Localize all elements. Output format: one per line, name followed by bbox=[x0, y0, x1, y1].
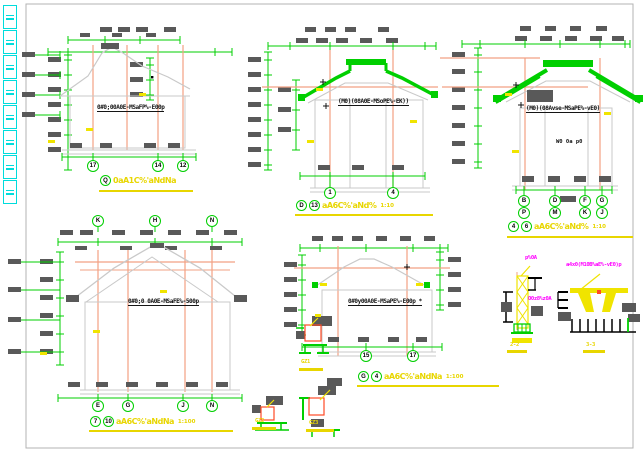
grid-bubble: G bbox=[596, 195, 608, 207]
drawing-title-text: aA6C%'aNdNa bbox=[384, 372, 442, 381]
grid-bubble: 14 bbox=[152, 160, 164, 172]
drawing-title: Q 0aA1C%'aNdNa bbox=[100, 175, 176, 186]
detail-label: GZ3 bbox=[309, 420, 318, 426]
grid-bubble: G bbox=[122, 400, 134, 412]
elevation-annotation: (M0)(08A0E-MSoPE%-EK)) bbox=[338, 98, 409, 106]
grid-bubble: 17 bbox=[87, 160, 99, 172]
elevation-annotation: 0#0;0 0A0E-MSaFE%-500p bbox=[128, 298, 199, 306]
detail-label-underline bbox=[583, 350, 605, 353]
detail-label: 2-2 bbox=[510, 342, 519, 348]
title-bubble: 4 bbox=[371, 371, 382, 382]
elevation-annotation: 0#0;00A0E-MSaFP%-E00p bbox=[97, 104, 164, 112]
grid-bubble: H bbox=[149, 215, 161, 227]
detail-label-underline bbox=[306, 429, 334, 432]
drawing-title-text: aA6C%'aNd% bbox=[534, 222, 588, 231]
drawing-title-text: aA6C%'aNd% bbox=[322, 201, 376, 210]
grid-bubble: 4 bbox=[387, 187, 399, 199]
grid-bubble: N bbox=[206, 400, 218, 412]
drawing-scale: 1:10 bbox=[592, 224, 606, 230]
callout-text: a4x0(M10B%aE%-vE0)p bbox=[566, 262, 621, 268]
title-bubble: 7 bbox=[90, 416, 101, 427]
grid-bubble: N bbox=[206, 215, 218, 227]
title-underline bbox=[507, 236, 633, 238]
grid-bubble: M bbox=[549, 207, 561, 219]
title-underline bbox=[99, 190, 193, 192]
title-bubble: 13 bbox=[309, 200, 320, 211]
drawing-title: D 13 aA6C%'aNd% 1:10 bbox=[296, 200, 394, 211]
title-underline bbox=[357, 385, 499, 387]
title-underline bbox=[295, 214, 433, 216]
title-bubble: 6 bbox=[521, 221, 532, 232]
detail-label-underline bbox=[507, 350, 527, 353]
drawing-scale: 1:100 bbox=[446, 374, 464, 380]
grid-bubble: J bbox=[177, 400, 189, 412]
drawing-title-text: aA6C%'aNdNa bbox=[116, 417, 174, 426]
drawing-title: 4 6 aA6C%'aNd% 1:10 bbox=[508, 221, 606, 232]
detail-label: GZ2 bbox=[255, 418, 264, 424]
drawing-scale: 1:10 bbox=[380, 203, 394, 209]
elevation-annotation: (M0)(08Avse-MSaPE%-vE0) bbox=[526, 105, 600, 113]
grid-bubble: B bbox=[518, 195, 530, 207]
drawing-scale: 1:100 bbox=[178, 419, 196, 425]
callout-text: p%0A bbox=[525, 255, 537, 261]
grid-bubble: J bbox=[596, 207, 608, 219]
elevation-annotation: 0#0y00A0E-MSaPE%-E00p * bbox=[348, 298, 422, 306]
grid-bubble: 12 bbox=[177, 160, 189, 172]
title-bubble: 4 bbox=[508, 221, 519, 232]
title-bubble: D bbox=[296, 200, 307, 211]
title-bubble: G bbox=[358, 371, 369, 382]
elevation-note: W0 0a p0 bbox=[556, 139, 583, 145]
detail-label: GZ1 bbox=[301, 359, 310, 365]
grid-bubble: P bbox=[518, 207, 530, 219]
cad-viewer-window: 0#0;00A0E-MSaFP%-E00p (M0)(08A0E-MSoPE%-… bbox=[0, 0, 643, 453]
detail-label-underline bbox=[299, 368, 323, 371]
title-bubble: 10 bbox=[103, 416, 114, 427]
grid-bubble: F bbox=[579, 195, 591, 207]
detail-label-underline bbox=[252, 427, 276, 430]
grid-bubble: 15 bbox=[360, 350, 372, 362]
grid-bubble: D bbox=[549, 195, 561, 207]
drawing-title-text: 0aA1C%'aNdNa bbox=[113, 176, 176, 185]
grid-bubble: 1 bbox=[324, 187, 336, 199]
grid-bubble: K bbox=[579, 207, 591, 219]
grid-bubble: K bbox=[92, 215, 104, 227]
detail-label: 3-3 bbox=[586, 342, 595, 348]
title-underline bbox=[89, 430, 233, 432]
title-bubble: Q bbox=[100, 175, 111, 186]
grid-bubble: 17 bbox=[407, 350, 419, 362]
callout-text: O0z8%z0A bbox=[528, 296, 551, 302]
drawing-title: G 4 aA6C%'aNdNa 1:100 bbox=[358, 371, 463, 382]
grid-bubble: E bbox=[92, 400, 104, 412]
drawing-title: 7 10 aA6C%'aNdNa 1:100 bbox=[90, 416, 195, 427]
